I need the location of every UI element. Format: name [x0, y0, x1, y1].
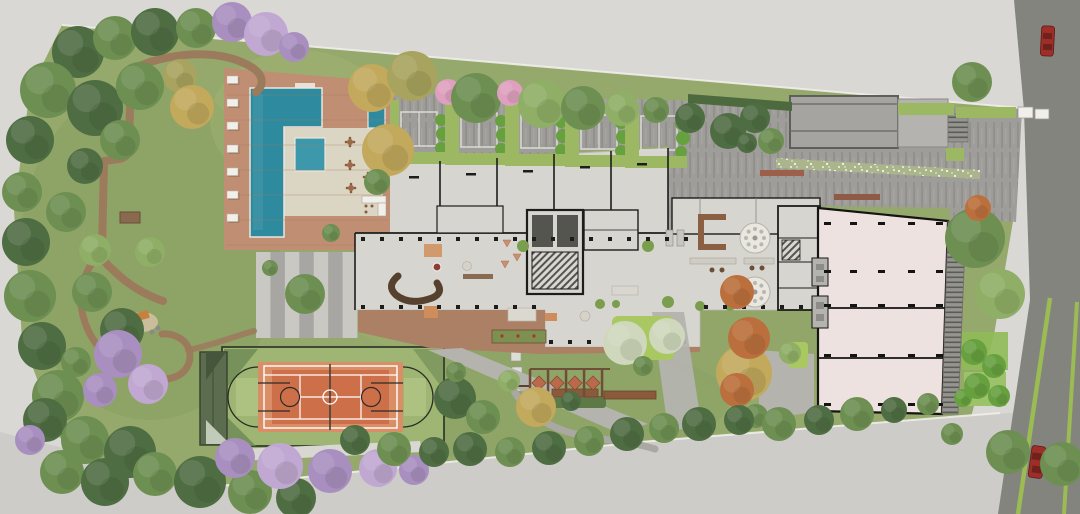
deck-chair — [349, 160, 352, 163]
column — [665, 237, 669, 241]
column-tick — [908, 304, 915, 307]
trellis-post — [583, 369, 586, 397]
unit-door — [580, 166, 590, 169]
column-tick — [850, 222, 857, 225]
column — [568, 340, 572, 344]
trellis-post — [601, 369, 604, 397]
bay-lawn — [505, 102, 519, 160]
bay-lawn — [565, 155, 627, 167]
column — [549, 340, 553, 344]
deck-chair — [346, 187, 349, 190]
sun-lounger — [227, 145, 238, 153]
deck-chair — [354, 187, 357, 190]
sun-lounger — [227, 99, 238, 107]
bay-lawn — [505, 154, 567, 166]
column — [532, 237, 536, 241]
unit-door — [523, 170, 533, 173]
column-tick — [850, 270, 857, 273]
column-tick — [824, 354, 831, 357]
column-tick — [878, 270, 885, 273]
deck-chair — [345, 164, 348, 167]
wood-bench — [604, 391, 656, 399]
column — [513, 237, 517, 241]
sun-lounger — [227, 76, 238, 84]
column — [437, 305, 441, 309]
column — [723, 305, 727, 309]
column — [456, 237, 460, 241]
column — [704, 305, 708, 309]
column-tick — [908, 270, 915, 273]
site-plan-rendering — [0, 0, 1080, 514]
pool-bar — [362, 196, 386, 203]
stair-hatch — [948, 114, 968, 142]
deck-chair — [349, 168, 352, 171]
site-plan-canvas — [0, 0, 1080, 514]
column — [780, 305, 784, 309]
column-tick — [908, 403, 915, 406]
column — [589, 237, 593, 241]
column — [570, 237, 574, 241]
deck-chair — [349, 137, 352, 140]
column — [380, 237, 384, 241]
unit-door — [466, 173, 476, 176]
column-tick — [824, 270, 831, 273]
unit-door — [637, 163, 647, 166]
column — [380, 305, 384, 309]
column — [513, 305, 517, 309]
column — [456, 305, 460, 309]
column — [494, 305, 498, 309]
sun-lounger — [227, 122, 238, 130]
column-tick — [824, 403, 831, 406]
kids-pool — [295, 138, 325, 171]
sun-lounger — [227, 214, 238, 222]
column-tick — [936, 222, 943, 225]
deck-chair — [353, 164, 356, 167]
deck-chair — [349, 145, 352, 148]
hedge — [676, 131, 690, 145]
column-tick — [936, 270, 943, 273]
column-tick — [878, 222, 885, 225]
column-tick — [824, 304, 831, 307]
garden-bench — [120, 212, 140, 223]
column — [608, 237, 612, 241]
deck-chair — [350, 183, 353, 186]
column-tick — [936, 354, 943, 357]
column — [399, 237, 403, 241]
column — [646, 237, 650, 241]
column — [475, 237, 479, 241]
column — [799, 305, 803, 309]
column — [532, 305, 536, 309]
deck-table — [348, 185, 354, 191]
sun-lounger — [227, 168, 238, 176]
column — [494, 237, 498, 241]
bay-lawn — [625, 156, 687, 168]
deck-table — [347, 139, 353, 145]
neighbor-slab — [818, 208, 948, 414]
column-tick — [908, 354, 915, 357]
column-tick — [850, 304, 857, 307]
column-tick — [908, 222, 915, 225]
column-tick — [824, 222, 831, 225]
deck-chair — [345, 141, 348, 144]
column-tick — [850, 354, 857, 357]
paving-stripe — [328, 252, 343, 338]
deck-chair — [353, 141, 356, 144]
column — [437, 237, 441, 241]
car-body — [1040, 26, 1055, 57]
deck-table — [347, 162, 353, 168]
column — [361, 305, 365, 309]
column — [399, 305, 403, 309]
column — [418, 237, 422, 241]
column — [684, 237, 688, 241]
column-tick — [878, 304, 885, 307]
column-tick — [936, 304, 943, 307]
sun-lounger — [227, 191, 238, 199]
column — [361, 237, 365, 241]
deck-chair — [350, 191, 353, 194]
column — [587, 340, 591, 344]
column-tick — [878, 354, 885, 357]
unit-door — [409, 176, 419, 179]
column — [418, 305, 422, 309]
column — [627, 237, 631, 241]
column — [551, 237, 555, 241]
column — [475, 305, 479, 309]
